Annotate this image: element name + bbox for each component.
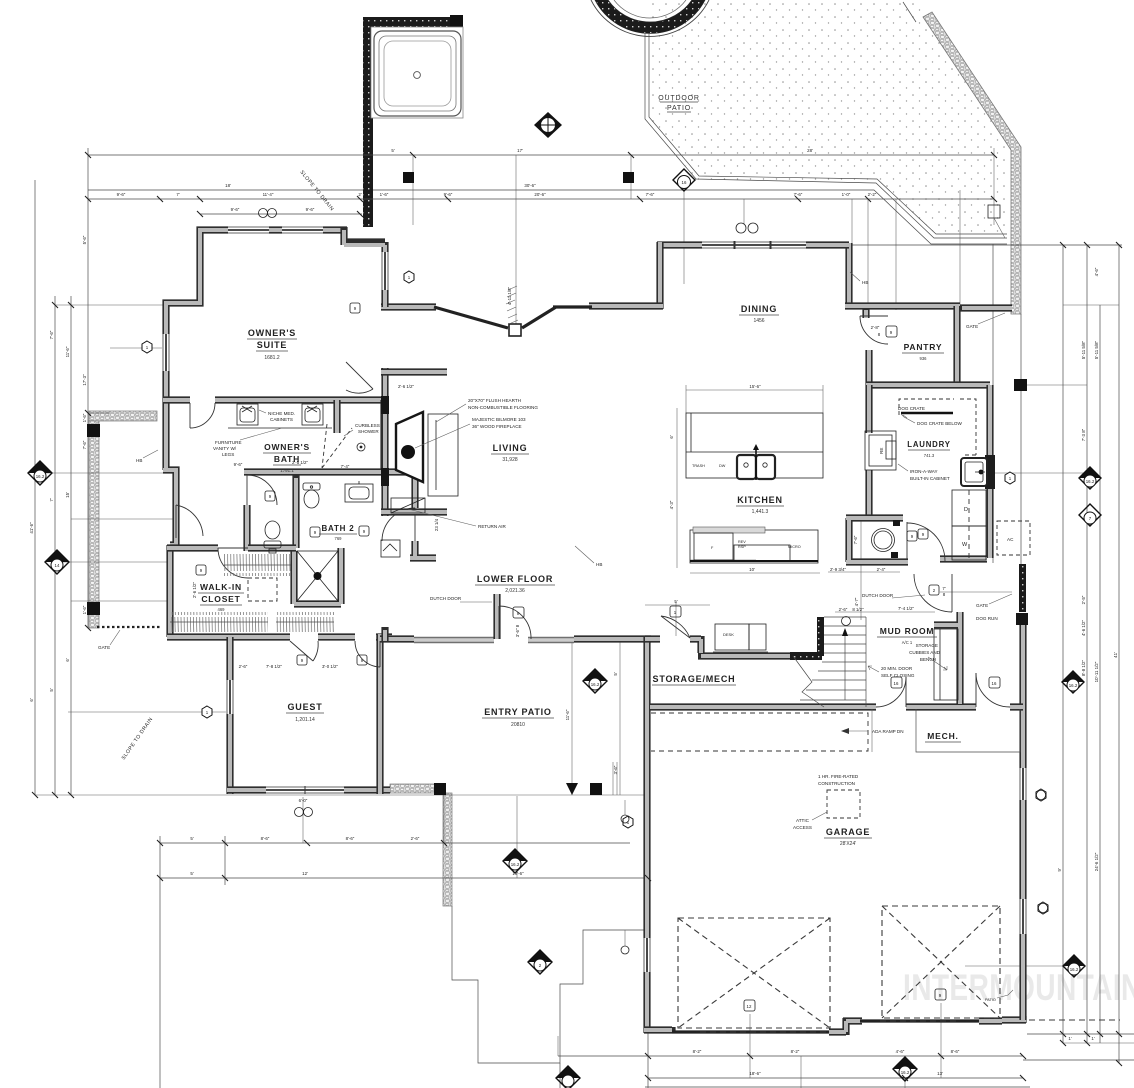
svg-text:7'-6": 7'-6" bbox=[49, 330, 54, 339]
svg-text:BENCH: BENCH bbox=[920, 657, 936, 662]
svg-text:16.2: 16.2 bbox=[1086, 479, 1095, 484]
svg-text:D: D bbox=[964, 507, 968, 513]
svg-text:7'-6": 7'-6" bbox=[646, 192, 655, 197]
svg-text:GATE: GATE bbox=[976, 603, 988, 608]
svg-text:3'-0 1/2": 3'-0 1/2" bbox=[322, 664, 339, 669]
svg-text:OWNER'S: OWNER'S bbox=[248, 328, 296, 338]
svg-text:20'-6": 20'-6" bbox=[534, 192, 546, 197]
svg-text:SHOWER: SHOWER bbox=[358, 429, 379, 434]
svg-text:769: 769 bbox=[335, 536, 343, 541]
svg-text:IRON-A-WAY: IRON-A-WAY bbox=[910, 469, 938, 474]
svg-text:KITCHEN: KITCHEN bbox=[737, 495, 783, 505]
svg-text:LEGS: LEGS bbox=[222, 452, 234, 457]
svg-text:15': 15' bbox=[65, 492, 70, 498]
svg-text:16: 16 bbox=[992, 681, 997, 686]
svg-text:LIVING: LIVING bbox=[493, 443, 528, 453]
svg-text:28': 28' bbox=[807, 148, 813, 153]
svg-text:17'-3": 17'-3" bbox=[82, 374, 87, 386]
svg-text:1': 1' bbox=[1091, 1036, 1094, 1041]
svg-text:MUD ROOM: MUD ROOM bbox=[880, 626, 935, 636]
svg-text:PANTRY: PANTRY bbox=[904, 342, 943, 352]
svg-text:5': 5' bbox=[190, 871, 193, 876]
svg-text:28'X24': 28'X24' bbox=[840, 841, 856, 847]
svg-text:8'-8 1/2": 8'-8 1/2" bbox=[1081, 660, 1086, 677]
svg-text:6'-0": 6'-0" bbox=[299, 798, 308, 803]
svg-text:20 MIN. DOOR: 20 MIN. DOOR bbox=[881, 666, 913, 671]
svg-text:1'-6": 1'-6" bbox=[380, 192, 389, 197]
svg-text:18': 18' bbox=[225, 183, 231, 188]
svg-text:4'-3": 4'-3" bbox=[669, 500, 674, 509]
svg-text:HB: HB bbox=[596, 562, 602, 567]
svg-text:OUTDOOR: OUTDOOR bbox=[658, 95, 699, 102]
svg-text:CABINETS: CABINETS bbox=[270, 417, 293, 422]
svg-text:2'-4": 2'-4" bbox=[877, 567, 886, 572]
svg-text:8'-6": 8'-6" bbox=[951, 1049, 960, 1054]
svg-text:2'-9 3/4": 2'-9 3/4" bbox=[830, 567, 847, 572]
svg-text:31,928: 31,928 bbox=[502, 457, 518, 463]
svg-text:2'-2": 2'-2" bbox=[868, 192, 877, 197]
svg-text:ACCESS: ACCESS bbox=[793, 825, 812, 830]
svg-text:DUTCH DOOR: DUTCH DOOR bbox=[862, 593, 894, 598]
svg-text:5': 5' bbox=[674, 599, 677, 604]
svg-text:1,441.3: 1,441.3 bbox=[752, 509, 769, 515]
svg-text:5'-11 5/8": 5'-11 5/8" bbox=[1094, 340, 1099, 359]
svg-text:11'-6": 11'-6" bbox=[565, 709, 570, 720]
svg-text:6': 6' bbox=[669, 435, 674, 438]
svg-text:13': 13' bbox=[937, 1071, 943, 1076]
svg-text:CURBLESS: CURBLESS bbox=[355, 423, 380, 428]
svg-text:8'-6": 8'-6" bbox=[261, 836, 270, 841]
svg-text:16.2: 16.2 bbox=[591, 682, 600, 687]
svg-text:DOG RUN: DOG RUN bbox=[976, 616, 998, 621]
svg-text:16: 16 bbox=[894, 681, 899, 686]
svg-text:AC: AC bbox=[1007, 537, 1014, 542]
svg-text:2'-6 1/2": 2'-6 1/2" bbox=[192, 582, 197, 599]
svg-text:1791.1: 1791.1 bbox=[280, 468, 294, 473]
svg-text:GATE: GATE bbox=[98, 645, 110, 650]
svg-text:41'-6": 41'-6" bbox=[29, 522, 34, 534]
svg-text:7'-4 1/2": 7'-4 1/2" bbox=[898, 606, 915, 611]
svg-text:8'-2": 8'-2" bbox=[791, 1049, 800, 1054]
svg-text:HB: HB bbox=[136, 458, 142, 463]
svg-text:LAUNDRY: LAUNDRY bbox=[907, 440, 950, 449]
svg-text:NON-COMBUSTIBLE FLOORING: NON-COMBUSTIBLE FLOORING bbox=[468, 405, 538, 410]
svg-text:6': 6' bbox=[65, 658, 70, 661]
svg-text:10'-11 1/2": 10'-11 1/2" bbox=[1094, 661, 1099, 682]
svg-text:7': 7' bbox=[176, 192, 179, 197]
svg-text:17': 17' bbox=[517, 148, 523, 153]
svg-text:7'-6": 7'-6" bbox=[82, 440, 87, 449]
svg-text:GUEST: GUEST bbox=[287, 702, 322, 712]
svg-text:DOG CRATE BELOW: DOG CRATE BELOW bbox=[917, 421, 962, 426]
svg-text:2,021.36: 2,021.36 bbox=[505, 588, 525, 594]
svg-text:1456: 1456 bbox=[753, 318, 764, 324]
svg-text:7'-6": 7'-6" bbox=[853, 535, 858, 544]
svg-text:HB: HB bbox=[862, 280, 868, 285]
svg-text:5': 5' bbox=[391, 148, 394, 153]
svg-text:3'-6" 8: 3'-6" 8 bbox=[515, 624, 520, 637]
svg-text:10': 10' bbox=[749, 567, 755, 572]
svg-text:9': 9' bbox=[1057, 868, 1062, 871]
svg-text:41': 41' bbox=[1113, 652, 1118, 658]
svg-text:4'-6": 4'-6" bbox=[896, 1049, 905, 1054]
svg-text:1681.2: 1681.2 bbox=[264, 355, 280, 361]
svg-text:2'-8": 2'-8" bbox=[871, 325, 880, 330]
svg-text:12: 12 bbox=[747, 1004, 752, 1009]
svg-text:REV: REV bbox=[738, 540, 746, 544]
svg-text:936: 936 bbox=[920, 356, 928, 361]
svg-text:OWNER'S: OWNER'S bbox=[264, 442, 310, 452]
svg-text:7': 7' bbox=[49, 498, 54, 501]
svg-text:3'-6": 3'-6" bbox=[613, 765, 618, 774]
svg-text:VANITY W/: VANITY W/ bbox=[213, 446, 237, 451]
svg-text:WALK-IN: WALK-IN bbox=[200, 582, 242, 592]
svg-text:16: 16 bbox=[682, 180, 687, 185]
svg-text:NICHE MED.: NICHE MED. bbox=[268, 411, 295, 416]
svg-text:DOG CRATE: DOG CRATE bbox=[898, 406, 925, 411]
svg-text:36" WOOD FIREPLACE: 36" WOOD FIREPLACE bbox=[472, 424, 522, 429]
svg-text:5': 5' bbox=[190, 836, 193, 841]
svg-text:6': 6' bbox=[29, 698, 34, 701]
svg-text:20"X70" FLUSH HEARTH: 20"X70" FLUSH HEARTH bbox=[468, 398, 521, 403]
svg-text:4'-6": 4'-6" bbox=[1094, 267, 1099, 276]
svg-text:1,201.14: 1,201.14 bbox=[295, 717, 315, 723]
svg-text:5'-6": 5'-6" bbox=[82, 235, 87, 244]
svg-text:7'-8 1/2": 7'-8 1/2" bbox=[266, 664, 283, 669]
svg-text:LOWER FLOOR: LOWER FLOOR bbox=[477, 574, 553, 584]
svg-text:19'-6": 19'-6" bbox=[512, 871, 524, 876]
svg-text:11'-6": 11'-6" bbox=[65, 346, 70, 357]
svg-text:FURNITURE: FURNITURE bbox=[215, 440, 242, 445]
svg-text:11'-4": 11'-4" bbox=[263, 192, 274, 197]
svg-text:1'-0": 1'-0" bbox=[842, 192, 851, 197]
svg-text:741.3: 741.3 bbox=[924, 453, 935, 458]
svg-text:14: 14 bbox=[55, 563, 60, 568]
svg-text:469: 469 bbox=[218, 607, 226, 612]
svg-text:ATTIC: ATTIC bbox=[796, 818, 810, 823]
svg-text:W: W bbox=[962, 542, 968, 548]
svg-text:16.2: 16.2 bbox=[36, 474, 45, 479]
svg-text:1'-6": 1'-6" bbox=[82, 413, 87, 422]
svg-text:16.2: 16.2 bbox=[1069, 683, 1078, 688]
svg-text:16.2: 16.2 bbox=[511, 862, 520, 867]
svg-text:16.2: 16.2 bbox=[1070, 967, 1079, 972]
svg-text:MICRO: MICRO bbox=[788, 545, 801, 549]
svg-text:SELF CLOSING: SELF CLOSING bbox=[881, 673, 915, 678]
svg-text:GARAGE: GARAGE bbox=[826, 827, 870, 837]
svg-text:15'-6": 15'-6" bbox=[749, 384, 761, 389]
svg-text:CUBBIES AND: CUBBIES AND bbox=[909, 650, 941, 655]
svg-text:2'-6 1/2": 2'-6 1/2" bbox=[398, 384, 415, 389]
svg-text:18'-6": 18'-6" bbox=[749, 1071, 761, 1076]
svg-text:2'-6": 2'-6" bbox=[839, 607, 848, 612]
svg-text:16.2: 16.2 bbox=[901, 1070, 910, 1075]
svg-text:GATE: GATE bbox=[966, 324, 978, 329]
svg-text:PATIO: PATIO bbox=[667, 105, 691, 112]
svg-text:A/C 1: A/C 1 bbox=[902, 640, 913, 645]
svg-text:1': 1' bbox=[1068, 1036, 1071, 1041]
svg-text:5': 5' bbox=[49, 688, 54, 691]
svg-text:4'-6 1/2": 4'-6 1/2" bbox=[1081, 620, 1086, 637]
svg-text:20810: 20810 bbox=[511, 722, 525, 728]
svg-text:CONSTRUCTION: CONSTRUCTION bbox=[818, 781, 855, 786]
svg-text:9'-6": 9'-6" bbox=[306, 207, 315, 212]
svg-text:5': 5' bbox=[613, 672, 618, 675]
svg-text:ADA RAMP DN: ADA RAMP DN bbox=[872, 729, 904, 734]
svg-text:12': 12' bbox=[302, 871, 308, 876]
svg-text:5'-11 5/8": 5'-11 5/8" bbox=[1081, 340, 1086, 359]
svg-text:9'-6": 9'-6" bbox=[234, 462, 243, 467]
svg-text:2'-5": 2'-5" bbox=[1081, 595, 1086, 604]
svg-text:8'-6": 8'-6" bbox=[346, 836, 355, 841]
svg-text:2': 2' bbox=[358, 192, 361, 197]
svg-text:TRASH: TRASH bbox=[692, 464, 705, 468]
svg-text:9'-6": 9'-6" bbox=[117, 192, 126, 197]
svg-text:4'-7": 4'-7" bbox=[854, 597, 859, 606]
svg-text:STORAGE/MECH: STORAGE/MECH bbox=[653, 674, 736, 684]
svg-text:7'-3 8": 7'-3 8" bbox=[1081, 428, 1086, 441]
svg-text:RETURN AIR: RETURN AIR bbox=[478, 524, 507, 529]
svg-text:SUITE: SUITE bbox=[257, 340, 288, 350]
svg-text:9'-6": 9'-6" bbox=[231, 207, 240, 212]
svg-text:RE: RE bbox=[879, 448, 884, 454]
svg-text:2'-6": 2'-6" bbox=[411, 836, 420, 841]
svg-text:1'-6": 1'-6" bbox=[82, 605, 87, 614]
svg-text:DESK: DESK bbox=[723, 632, 734, 637]
svg-text:RSP: RSP bbox=[738, 545, 746, 549]
svg-text:BUILT-IN CABINET: BUILT-IN CABINET bbox=[910, 476, 950, 481]
svg-text:ENTRY PATIO: ENTRY PATIO bbox=[484, 707, 551, 717]
svg-text:8'-2": 8'-2" bbox=[693, 1049, 702, 1054]
svg-text:MAJESTIC BILMORE 103: MAJESTIC BILMORE 103 bbox=[472, 417, 526, 422]
svg-text:2'-6": 2'-6" bbox=[239, 664, 248, 669]
svg-text:PATIO: PATIO bbox=[985, 998, 996, 1002]
svg-text:7'-4": 7'-4" bbox=[341, 464, 350, 469]
svg-text:CLOSET: CLOSET bbox=[201, 594, 240, 604]
svg-text:BATH 2: BATH 2 bbox=[321, 524, 354, 533]
svg-text:DUTCH DOOR: DUTCH DOOR bbox=[430, 596, 462, 601]
svg-text:DINING: DINING bbox=[741, 304, 777, 314]
svg-text:1 HR. FIRE-RATED: 1 HR. FIRE-RATED bbox=[818, 774, 859, 779]
svg-text:24'-6 1/2": 24'-6 1/2" bbox=[1094, 852, 1099, 871]
svg-text:8 1/2": 8 1/2" bbox=[852, 607, 864, 612]
svg-text:MECH.: MECH. bbox=[927, 731, 958, 741]
svg-text:7': 7' bbox=[942, 586, 945, 591]
svg-text:30'-6": 30'-6" bbox=[524, 183, 536, 188]
svg-text:INTERMOUNTAIN: INTERMOUNTAIN bbox=[903, 966, 1134, 1008]
svg-text:STORAGE: STORAGE bbox=[916, 643, 938, 648]
svg-text:23 1/4: 23 1/4 bbox=[434, 518, 439, 531]
svg-text:2'-5 1/2": 2'-5 1/2" bbox=[292, 460, 309, 465]
svg-text:4'-11 1/8": 4'-11 1/8" bbox=[507, 286, 512, 305]
svg-text:DW: DW bbox=[719, 464, 726, 468]
